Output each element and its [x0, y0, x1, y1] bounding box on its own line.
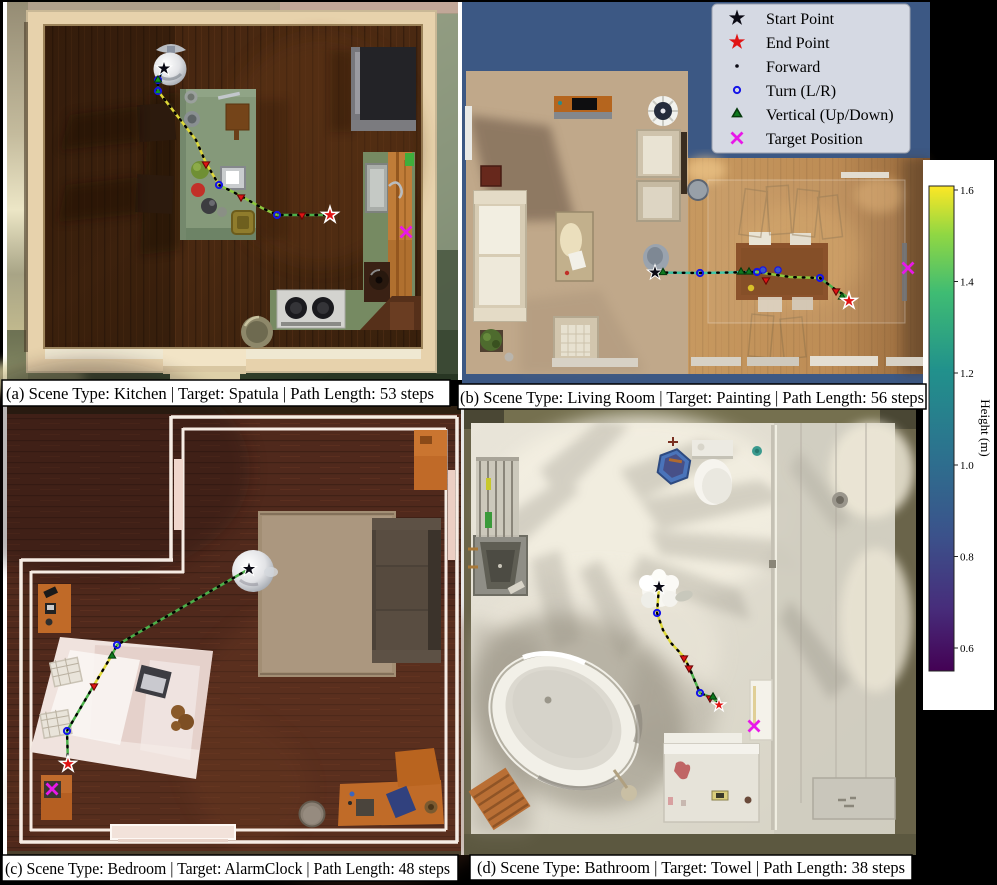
- svg-text:1.0: 1.0: [960, 460, 974, 472]
- svg-text:Turn (L/R): Turn (L/R): [766, 83, 836, 100]
- svg-text:Target Position: Target Position: [766, 131, 863, 148]
- svg-text:(d) Scene Type: Bathroom | Tar: (d) Scene Type: Bathroom | Target: Towel…: [477, 858, 905, 877]
- svg-text:Start Point: Start Point: [766, 11, 835, 28]
- svg-text:Forward: Forward: [766, 59, 820, 76]
- svg-text:1.2: 1.2: [960, 368, 974, 380]
- svg-text:0.6: 0.6: [960, 643, 974, 655]
- svg-text:Vertical (Up/Down): Vertical (Up/Down): [766, 107, 894, 124]
- svg-text:1.4: 1.4: [960, 277, 974, 289]
- svg-text:Height (m): Height (m): [978, 399, 993, 456]
- svg-text:(c) Scene Type: Bedroom | Targ: (c) Scene Type: Bedroom | Target: AlarmC…: [5, 859, 450, 878]
- svg-text:(b) Scene Type: Living Room |: (b) Scene Type: Living Room | Target: Pa…: [460, 388, 924, 407]
- svg-text:End Point: End Point: [766, 35, 830, 52]
- svg-text:0.8: 0.8: [960, 552, 974, 564]
- svg-text:1.6: 1.6: [960, 185, 974, 197]
- svg-text:(a) Scene Type: Kitchen | Targ: (a) Scene Type: Kitchen | Target: Spatul…: [6, 384, 434, 403]
